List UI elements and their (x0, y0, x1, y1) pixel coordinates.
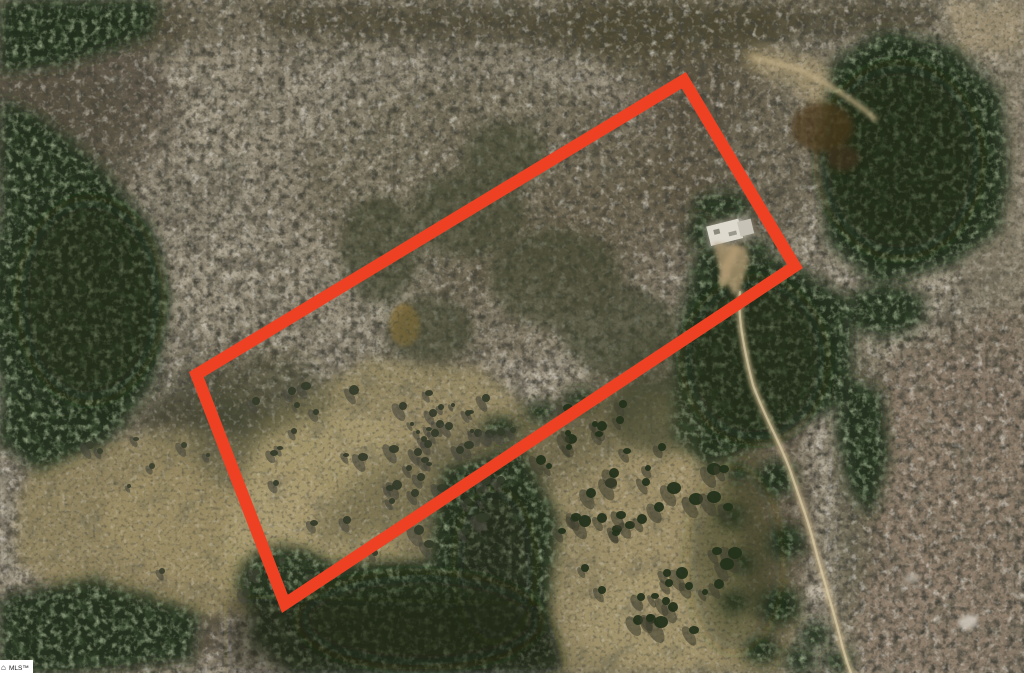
svg-text:⌂: ⌂ (1, 663, 6, 672)
svg-text:MLS™: MLS™ (9, 665, 29, 672)
